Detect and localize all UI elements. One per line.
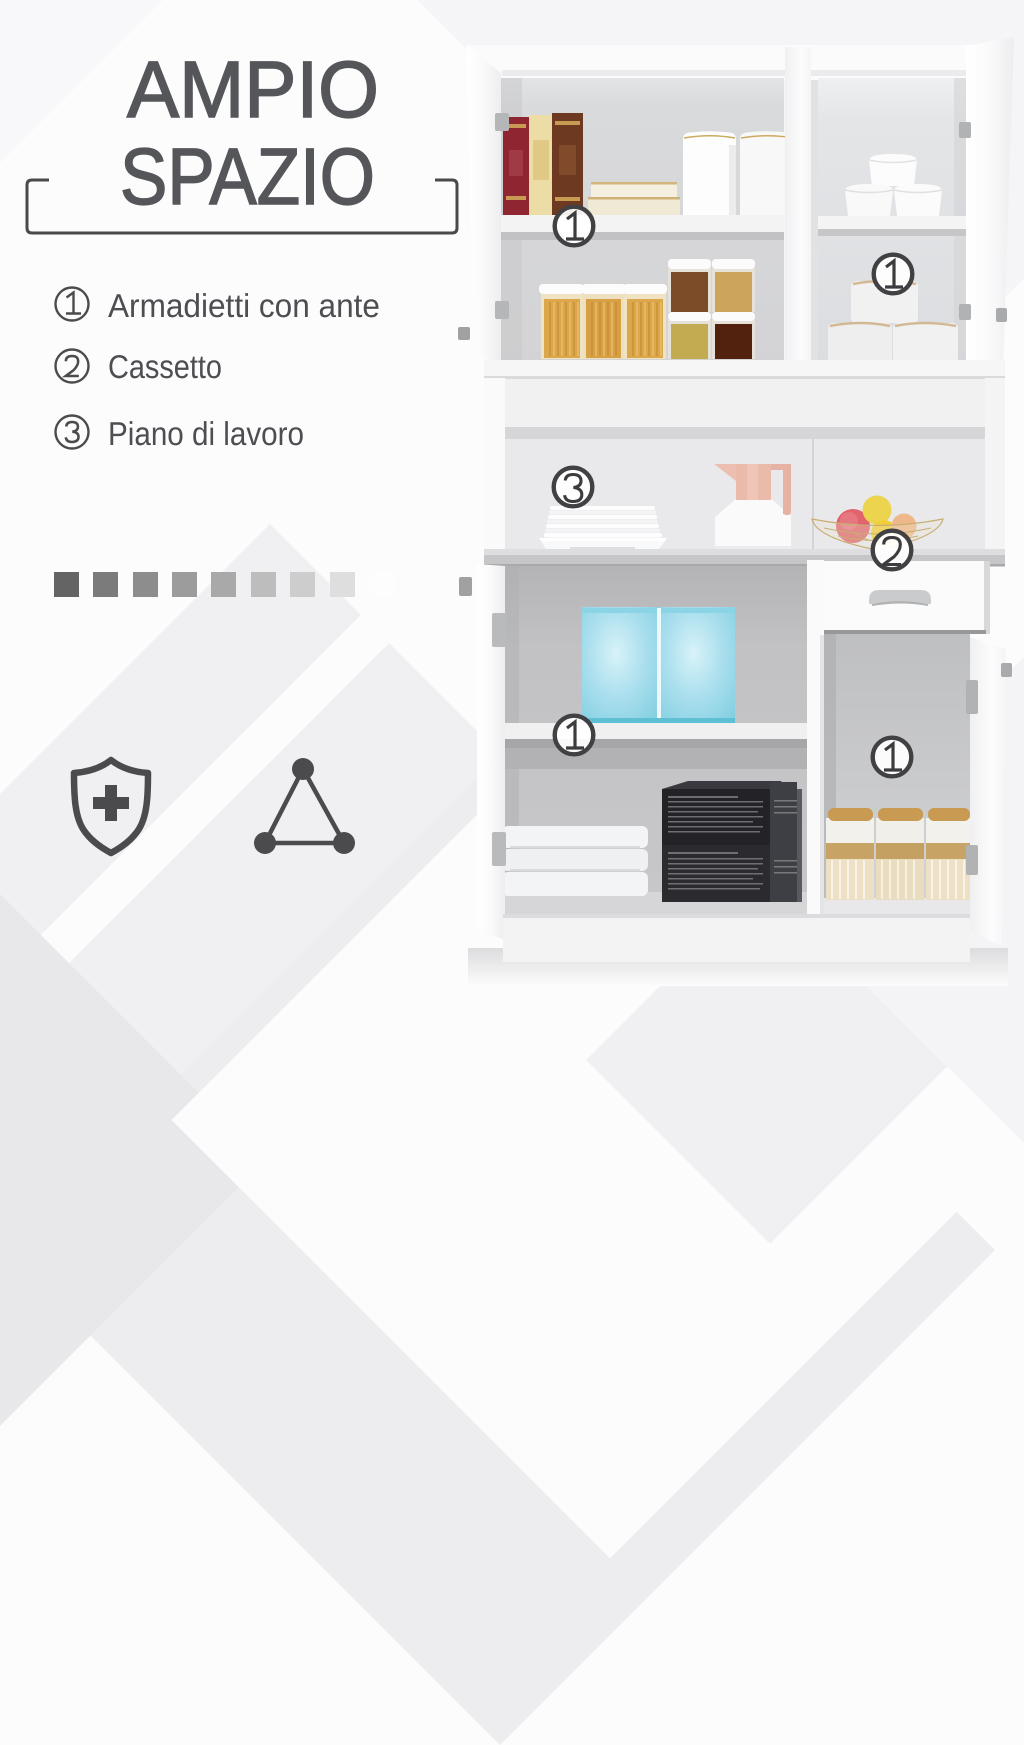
svg-text:AMPIO: AMPIO <box>127 45 379 134</box>
svg-text:Cassetto: Cassetto <box>108 348 222 385</box>
svg-text:SPAZIO: SPAZIO <box>120 132 375 221</box>
svg-text:Armadietti con ante: Armadietti con ante <box>108 287 380 324</box>
svg-text:Piano di lavoro: Piano di lavoro <box>108 415 304 452</box>
